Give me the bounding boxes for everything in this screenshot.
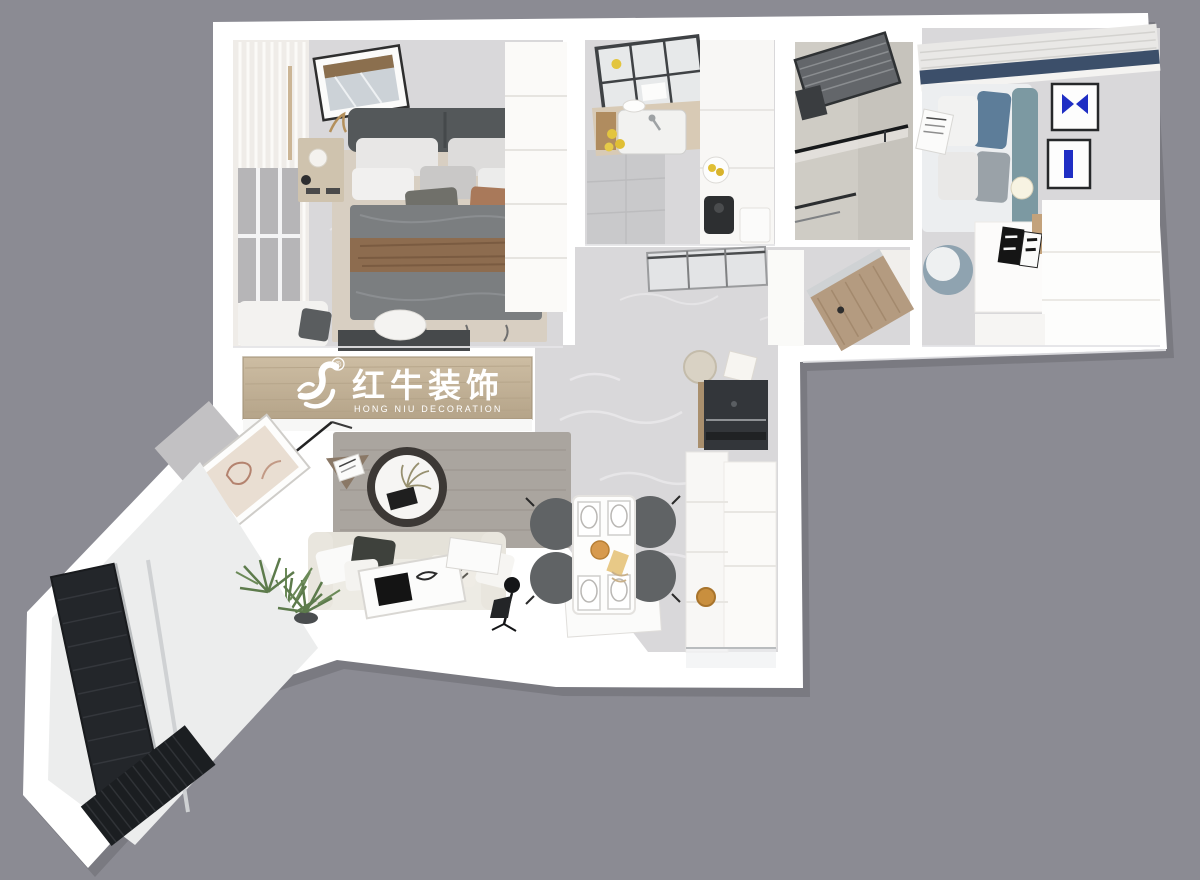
fruit [716,168,724,176]
kitchen [585,36,775,245]
bench-cushion-dark [298,308,332,342]
tv-niche-wood-edge [698,382,705,448]
desk-chair-blue [923,245,973,295]
brand-name-english: HONG NIU DECORATION [354,404,503,414]
gray-pillow [973,151,1010,203]
teal-headboard [1012,88,1038,228]
floorplan-canvas: ® 红牛装饰 HONG NIU DECORATION [0,0,1200,880]
kitchen-counter [592,100,716,156]
second-bedroom [916,24,1161,346]
sliding-glass-door [647,247,767,291]
coffee-table [367,447,447,527]
desk-posters [998,227,1043,268]
blue-pillow [972,90,1012,149]
window-sill-dish [641,82,667,101]
lemon [607,129,617,139]
brand-name-chinese: 红牛装饰 [352,367,504,404]
wardrobe-column [505,42,567,312]
shower-room [795,33,913,240]
second-bed [916,84,1038,232]
round-wall-decor [684,351,716,383]
lemon [615,139,625,149]
blue-bar-artwork [1064,150,1073,178]
desk-chair [374,310,426,340]
white-pillow [938,152,978,200]
lemon [605,143,614,152]
plate [623,100,645,112]
desk-lamp [1011,177,1033,199]
master-bedroom [233,40,567,351]
registered-mark: ® [335,360,342,370]
bin [740,208,770,242]
kettle [704,196,734,234]
glass-tv-bench [686,648,776,668]
nightstand-clock [301,175,311,185]
bed-pillow [352,168,414,200]
fruit-plate [703,157,729,183]
soundbar [706,432,766,440]
kitchen-tall-cabinets [700,40,774,245]
gold-bowl [697,588,715,606]
art-frame [1052,84,1098,130]
fruit [708,164,716,172]
floorplan-render: ® 红牛装饰 HONG NIU DECORATION [0,0,1200,880]
tv-cabinet-wide [724,462,776,648]
corridor [575,247,914,351]
hall-cabinet [768,250,804,346]
brand-plaque: ® 红牛装饰 HONG NIU DECORATION [243,357,532,431]
table-lamp [309,149,327,167]
